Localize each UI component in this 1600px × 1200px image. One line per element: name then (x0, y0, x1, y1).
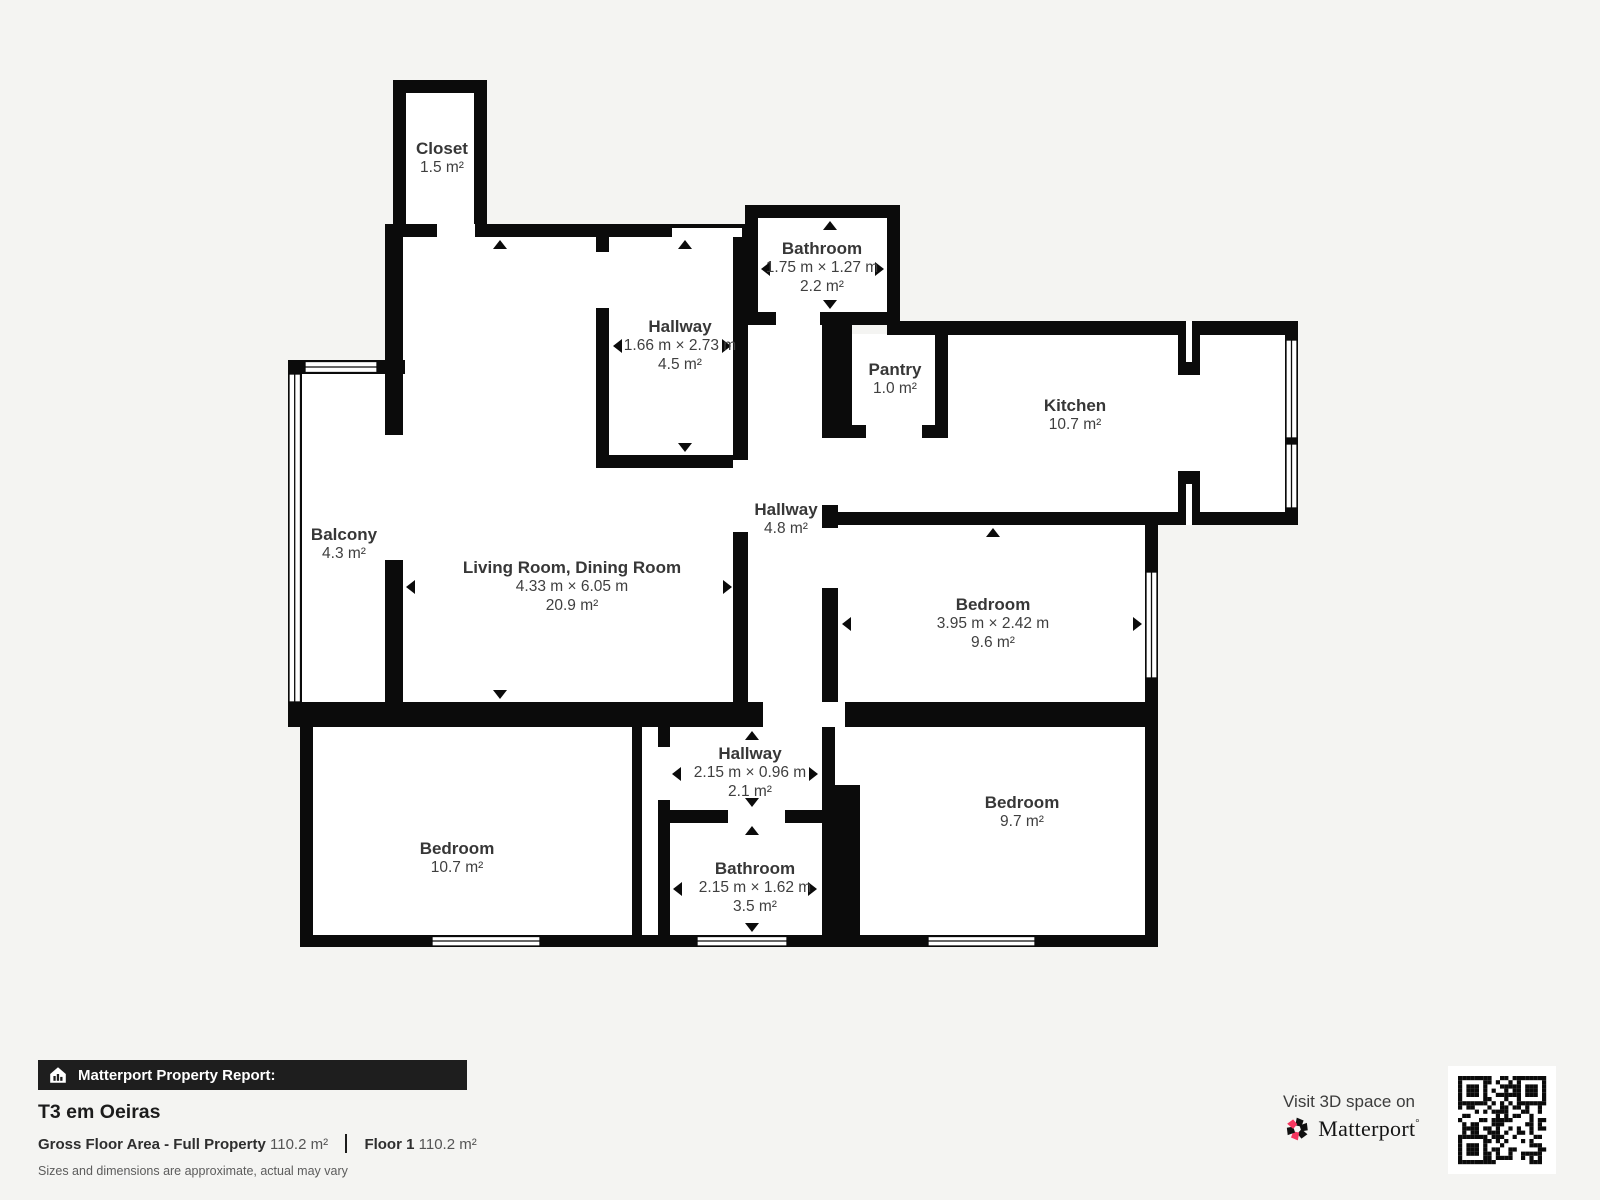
qr-code-pattern (1448, 1066, 1556, 1174)
room-name: Bedroom (985, 793, 1060, 812)
property-title: T3 em Oeiras (38, 1101, 160, 1124)
room-name: Balcony (311, 525, 377, 544)
room-name: Hallway (624, 317, 736, 336)
room-label-bathroom-top: Bathroom 1.75 m × 1.27 m 2.2 m² (766, 239, 878, 296)
room-label-kitchen: Kitchen 10.7 m² (1044, 396, 1106, 434)
room-area: 9.7 m² (985, 812, 1060, 831)
room-dimensions: 1.75 m × 1.27 m (766, 258, 878, 277)
room-area: 3.5 m² (699, 897, 811, 916)
gross-area-value: 110.2 m² (270, 1136, 328, 1153)
room-area: 1.0 m² (869, 379, 922, 398)
house-report-icon (49, 1066, 67, 1084)
floor-label: Floor 1 (364, 1136, 414, 1153)
room-label-balcony: Balcony 4.3 m² (311, 525, 377, 563)
room-name: Bathroom (766, 239, 878, 258)
room-label-hallway-bottom: Hallway 2.15 m × 0.96 m 2.1 m² (694, 744, 806, 801)
room-name: Bedroom (937, 595, 1049, 614)
room-area: 2.2 m² (766, 277, 878, 296)
room-label-bedroom-bottom-right: Bedroom 9.7 m² (985, 793, 1060, 831)
room-area: 1.5 m² (416, 158, 468, 177)
matterport-wordmark: Matterport° (1318, 1116, 1419, 1142)
room-label-hallway-mid: Hallway 4.8 m² (754, 500, 817, 538)
room-label-bedroom-right: Bedroom 3.95 m × 2.42 m 9.6 m² (937, 595, 1049, 652)
room-dimensions: 2.15 m × 0.96 m (694, 763, 806, 782)
room-label-pantry: Pantry 1.0 m² (869, 360, 922, 398)
room-dimensions: 2.15 m × 1.62 m (699, 878, 811, 897)
room-name: Closet (416, 139, 468, 158)
room-area: 4.5 m² (624, 355, 736, 374)
room-label-bedroom-left: Bedroom 10.7 m² (420, 839, 495, 877)
room-name: Kitchen (1044, 396, 1106, 415)
gross-area-label: Gross Floor Area - Full Property (38, 1136, 266, 1153)
room-name: Hallway (754, 500, 817, 519)
room-area: 4.8 m² (754, 519, 817, 538)
matterport-pinwheel-icon (1284, 1116, 1310, 1142)
report-bar: Matterport Property Report: (38, 1060, 467, 1090)
report-bar-label: Matterport Property Report: (78, 1067, 276, 1084)
room-name: Bedroom (420, 839, 495, 858)
room-dimensions: 1.66 m × 2.73 m (624, 336, 736, 355)
brand-trademark: ° (1415, 1118, 1419, 1129)
area-stats: Gross Floor Area - Full Property 110.2 m… (38, 1134, 477, 1153)
room-area: 9.6 m² (937, 633, 1049, 652)
room-name: Hallway (694, 744, 806, 763)
room-area: 4.3 m² (311, 544, 377, 563)
floor-plan (0, 0, 1600, 1200)
room-area: 10.7 m² (1044, 415, 1106, 434)
room-area: 20.9 m² (463, 596, 681, 615)
qr-code (1448, 1066, 1556, 1174)
room-area: 10.7 m² (420, 858, 495, 877)
room-area: 2.1 m² (694, 782, 806, 801)
stats-separator (345, 1134, 347, 1153)
room-label-hallway-top: Hallway 1.66 m × 2.73 m 4.5 m² (624, 317, 736, 374)
room-label-living-room: Living Room, Dining Room 4.33 m × 6.05 m… (463, 558, 681, 615)
room-name: Living Room, Dining Room (463, 558, 681, 577)
room-name: Bathroom (699, 859, 811, 878)
room-dimensions: 4.33 m × 6.05 m (463, 577, 681, 596)
matterport-logo: Matterport° (1284, 1116, 1419, 1142)
room-label-closet: Closet 1.5 m² (416, 139, 468, 177)
matterport-floor-plan-page: { "colors": { "background": "#f4f4f2", "… (0, 0, 1600, 1200)
floor-area-value: 110.2 m² (419, 1136, 477, 1153)
room-label-bathroom-bottom: Bathroom 2.15 m × 1.62 m 3.5 m² (699, 859, 811, 916)
room-name: Pantry (869, 360, 922, 379)
disclaimer-text: Sizes and dimensions are approximate, ac… (38, 1164, 348, 1178)
visit-3d-text: Visit 3D space on (1283, 1092, 1415, 1112)
room-dimensions: 3.95 m × 2.42 m (937, 614, 1049, 633)
